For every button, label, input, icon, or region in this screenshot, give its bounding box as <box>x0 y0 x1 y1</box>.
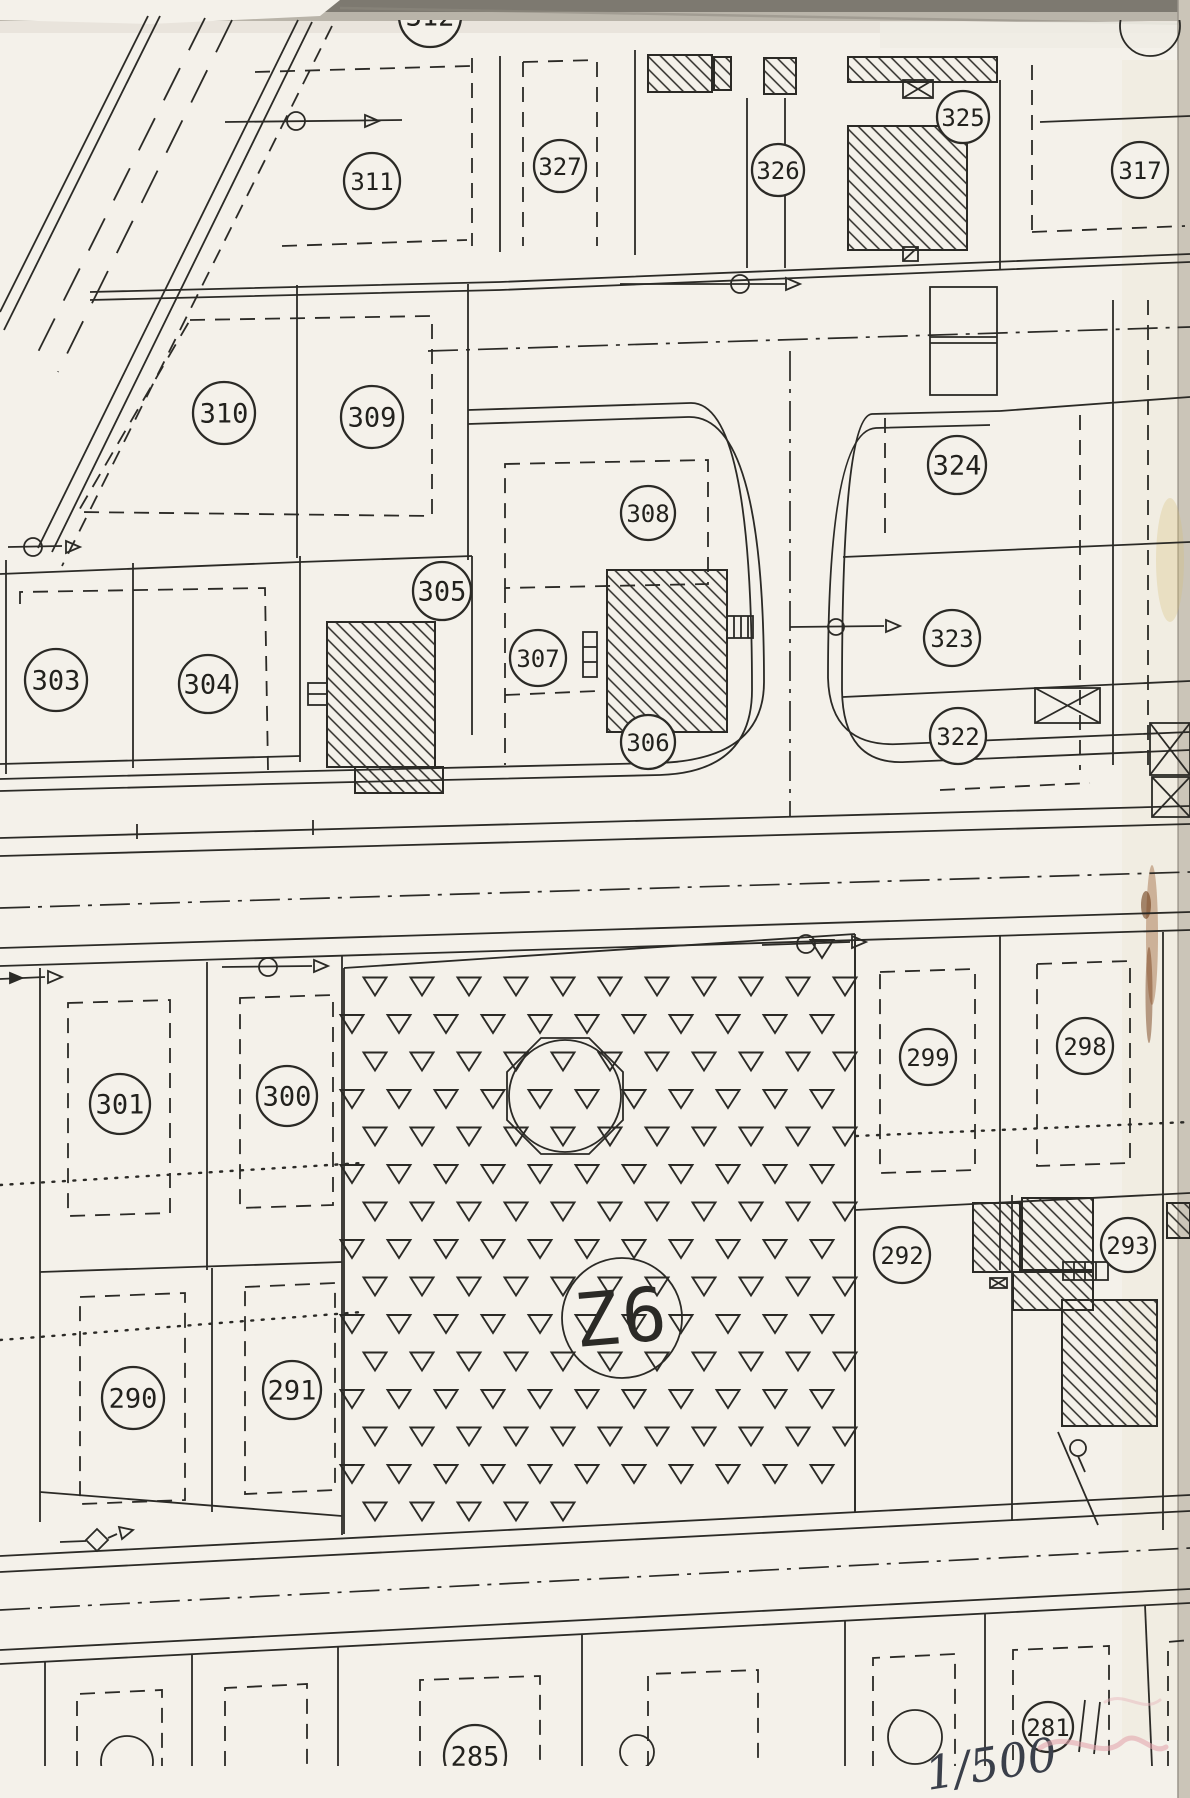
vegetation-triangle-pattern <box>341 940 857 1521</box>
parcel-number: 307 <box>516 645 559 673</box>
parcel-number: 306 <box>626 729 669 757</box>
parcel-number: 303 <box>32 666 81 697</box>
parcel-label-291: 291 <box>263 1361 321 1419</box>
building-hatched <box>355 767 443 793</box>
parcel-label-322: 322 <box>930 708 986 764</box>
parcel-number: 324 <box>933 451 982 482</box>
parcel-label-301: 301 <box>90 1074 150 1134</box>
building-hatched <box>1022 1198 1093 1270</box>
parcel-label-303: 303 <box>25 649 87 711</box>
parcel-number: 304 <box>184 670 233 701</box>
building-hatched <box>648 55 712 92</box>
parcel-number: 301 <box>96 1090 145 1121</box>
building-hatched <box>848 57 997 82</box>
circle-arrow-marker <box>620 275 800 293</box>
parcel-label-310: 310 <box>193 382 255 444</box>
cadastral-map-canvas: Z6 <box>0 0 1190 1798</box>
parcel-label-298: 298 <box>1057 1018 1113 1074</box>
building-hatched <box>848 126 967 250</box>
parcel-number: 308 <box>626 500 669 528</box>
building-hatched <box>973 1203 1020 1272</box>
parcel-label-323: 323 <box>924 610 980 666</box>
parcel-number: 285 <box>451 1742 500 1773</box>
parcel-label-324: 324 <box>928 436 986 494</box>
parcel-label-292: 292 <box>874 1227 930 1283</box>
compound-outline <box>930 287 997 395</box>
parcel-label-306: 306 <box>621 715 675 769</box>
building-annex-cells <box>308 683 327 705</box>
parcel-label-305: 305 <box>413 562 471 620</box>
parcel-label-290: 290 <box>102 1367 164 1429</box>
buildings-layer <box>308 55 1190 1426</box>
building-hatched <box>714 57 731 90</box>
parcel-number: 309 <box>348 403 397 434</box>
parcel-number: 290 <box>109 1384 158 1415</box>
parcel-number: 293 <box>1106 1232 1149 1260</box>
parcel-label-285: 285 <box>444 1725 506 1787</box>
building-annex-cells <box>583 632 597 677</box>
parcel-number: 327 <box>538 153 581 181</box>
parcel-number: 292 <box>880 1242 923 1270</box>
octagon-landmark <box>507 1038 623 1154</box>
parcel-label-300: 300 <box>257 1066 317 1126</box>
parcel-label-326: 326 <box>752 144 804 196</box>
diamond-arrow-marker <box>60 1527 133 1551</box>
parcel-number: 305 <box>418 577 467 608</box>
parcel-label-304: 304 <box>179 655 237 713</box>
parcel-label-309: 309 <box>341 386 403 448</box>
building-hatched <box>607 570 727 732</box>
building-hatched <box>764 58 796 94</box>
parcel-label-325: 325 <box>937 91 989 143</box>
circle-arrow-marker <box>222 958 328 976</box>
building-hatched <box>1167 1203 1190 1238</box>
parcel-label-311: 311 <box>344 153 400 209</box>
parcel-label-327: 327 <box>534 140 586 192</box>
parcel-number: 323 <box>930 625 973 653</box>
parcel-label-293: 293 <box>1101 1218 1155 1272</box>
edge-arrow-marker <box>0 971 62 983</box>
parcel-labels: 3123113273263253173103093083243053073033… <box>25 0 1168 1787</box>
circle-arrow-marker <box>790 619 900 635</box>
parcel-label-307: 307 <box>510 630 566 686</box>
circle-arrow-marker <box>762 935 866 953</box>
parcel-number: 322 <box>936 723 979 751</box>
scanned-cadastral-sheet: Z6 <box>0 0 1190 1798</box>
zone-label-circle: Z6 <box>562 1258 682 1378</box>
parcels-layer <box>0 0 1190 1788</box>
parcel-number: 298 <box>1063 1033 1106 1061</box>
parcel-number: 311 <box>350 168 393 196</box>
parcel-number: 300 <box>263 1082 312 1113</box>
parcel-label-317: 317 <box>1112 142 1168 198</box>
parcel-number: 291 <box>268 1376 317 1407</box>
banded-box <box>727 616 753 638</box>
parcel-number: 317 <box>1118 157 1161 185</box>
parcel-label-308: 308 <box>621 486 675 540</box>
parcel-number: 326 <box>756 157 799 185</box>
triangle-zone: Z6 <box>341 934 857 1534</box>
crossed-box <box>1035 688 1100 723</box>
building-hatched <box>327 622 435 767</box>
parcel-label-299: 299 <box>900 1029 956 1085</box>
parcel-number: 310 <box>200 399 249 430</box>
parcel-number: 299 <box>906 1044 949 1072</box>
bowtie-symbol <box>990 1278 1007 1288</box>
building-hatched <box>1062 1300 1157 1426</box>
parcel-number: 325 <box>941 104 984 132</box>
zone-label: Z6 <box>571 1271 673 1365</box>
